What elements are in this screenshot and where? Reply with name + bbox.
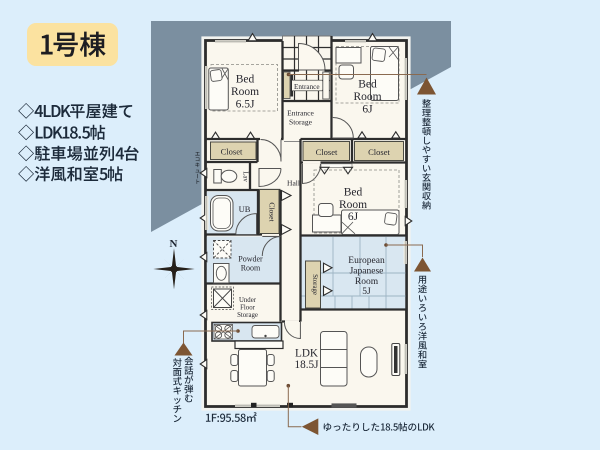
svg-text:Closet: Closet xyxy=(368,147,390,157)
svg-text:18.5J: 18.5J xyxy=(295,359,320,371)
svg-text:5J: 5J xyxy=(362,287,371,297)
svg-text:Room: Room xyxy=(339,199,367,211)
svg-text:Japanese: Japanese xyxy=(350,267,384,277)
svg-text:Powder: Powder xyxy=(238,255,263,264)
svg-text:6.5J: 6.5J xyxy=(236,99,255,111)
svg-text:Room: Room xyxy=(353,91,381,103)
svg-text:Closet: Closet xyxy=(221,147,243,157)
svg-text:6J: 6J xyxy=(362,104,373,116)
svg-text:Room: Room xyxy=(355,277,379,287)
svg-text:Hall: Hall xyxy=(287,179,300,188)
svg-text:Bed: Bed xyxy=(236,74,255,86)
svg-text:Closet: Closet xyxy=(316,147,338,157)
svg-text:Storage: Storage xyxy=(289,118,313,127)
svg-text:Bed: Bed xyxy=(358,79,377,91)
svg-text:Storage: Storage xyxy=(311,274,318,295)
svg-text:Closet: Closet xyxy=(268,202,277,222)
svg-text:LDK: LDK xyxy=(295,348,318,360)
svg-text:European: European xyxy=(348,256,385,266)
svg-text:Entrance: Entrance xyxy=(287,109,314,118)
svg-text:Floor: Floor xyxy=(240,305,255,312)
svg-text:Lav: Lav xyxy=(242,171,249,182)
svg-text:Bed: Bed xyxy=(344,187,363,199)
svg-text:6J: 6J xyxy=(348,211,359,223)
svg-text:Under: Under xyxy=(239,297,257,304)
svg-text:Room: Room xyxy=(241,264,261,273)
svg-text:Entrance: Entrance xyxy=(294,83,320,91)
svg-text:N: N xyxy=(170,238,178,250)
svg-text:Storage: Storage xyxy=(237,312,258,319)
svg-text:UB: UB xyxy=(239,204,251,214)
svg-text:Room: Room xyxy=(231,86,259,98)
